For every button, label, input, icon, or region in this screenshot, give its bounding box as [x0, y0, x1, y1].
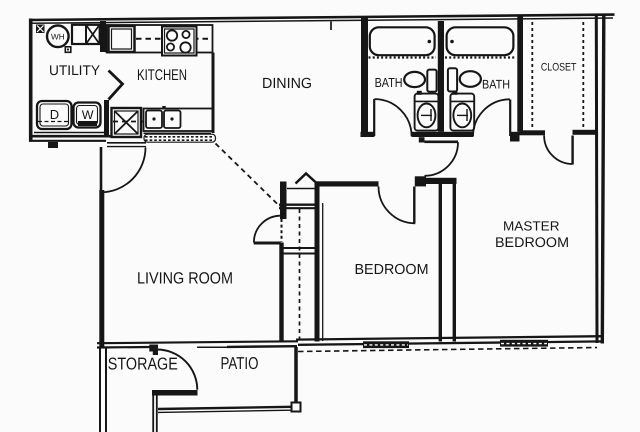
svg-text:BEDROOM: BEDROOM: [495, 234, 569, 250]
svg-text:MASTER: MASTER: [503, 218, 560, 233]
svg-text:KITCHEN: KITCHEN: [137, 67, 187, 84]
svg-text:CLOSET: CLOSET: [541, 61, 577, 73]
svg-text:WH: WH: [51, 33, 65, 42]
svg-text:D: D: [50, 107, 59, 122]
svg-text:W: W: [82, 108, 94, 122]
svg-text:BEDROOM: BEDROOM: [355, 262, 429, 278]
svg-text:BATH: BATH: [375, 75, 403, 90]
svg-text:BATH: BATH: [482, 77, 510, 91]
svg-text:UTILITY: UTILITY: [49, 62, 101, 78]
svg-text:DINING: DINING: [262, 76, 312, 92]
svg-text:LIVING ROOM: LIVING ROOM: [137, 269, 233, 287]
svg-text:STORAGE: STORAGE: [108, 354, 178, 374]
svg-text:PATIO: PATIO: [221, 353, 259, 373]
